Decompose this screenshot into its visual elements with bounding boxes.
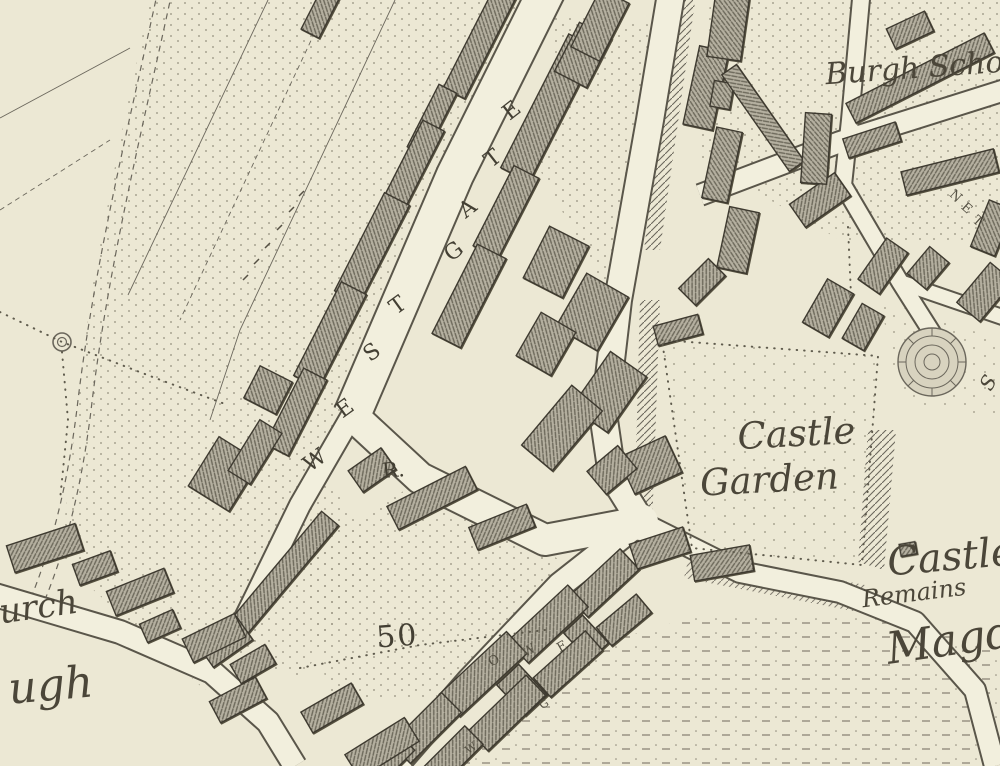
castle-garden-line1-label: Castle <box>736 409 856 458</box>
benchmark-50-label: 50 <box>375 618 420 656</box>
r-abbrev-label: R. <box>381 457 406 483</box>
castle-garden-line2-label: Garden <box>699 454 840 504</box>
castle-mound <box>898 328 966 396</box>
burgh-truncated-label: ugh <box>6 656 95 714</box>
map-viewport: Burgh SchoCastleGardenCastleRemainsMagdu… <box>0 0 1000 766</box>
map-canvas: Burgh SchoCastleGardenCastleRemainsMagdu… <box>0 0 1000 766</box>
